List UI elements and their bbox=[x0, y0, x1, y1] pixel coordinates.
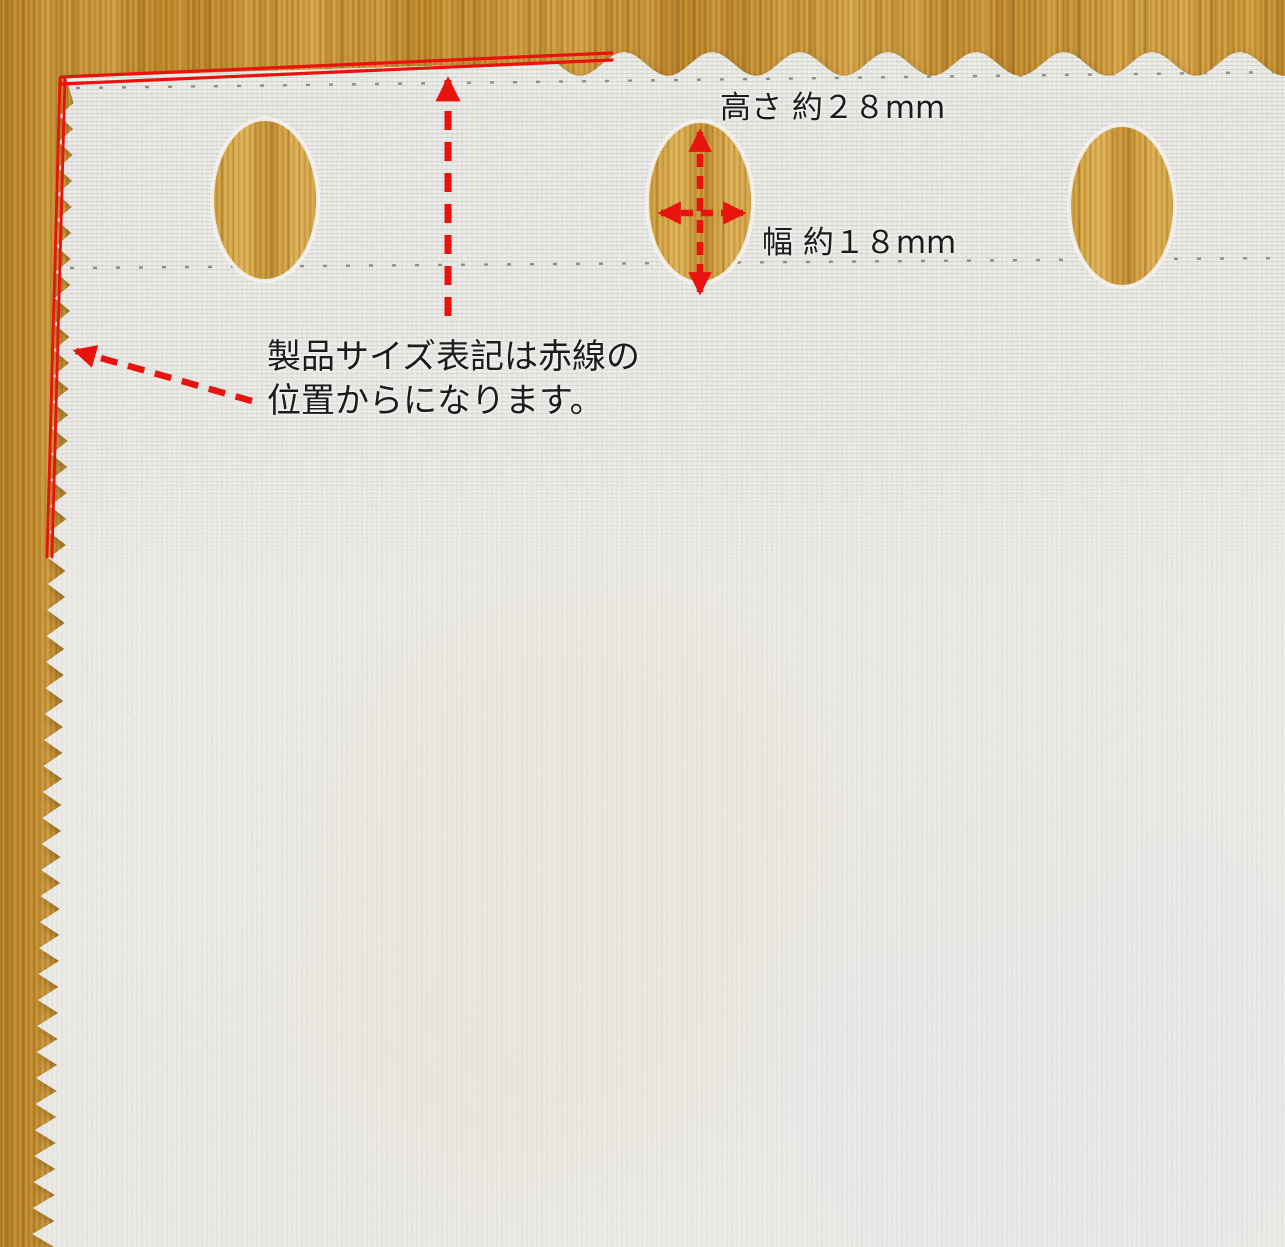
photo-canvas bbox=[0, 0, 1285, 1247]
annotated-product-photo: 高さ 約２８mm 幅 約１８mm 製品サイズ表記は赤線の 位置からになります。 bbox=[0, 0, 1285, 1247]
hole-height-label: 高さ 約２８mm bbox=[720, 82, 945, 127]
size-note-line2: 位置からになります。 bbox=[267, 379, 640, 423]
grommet-hole-3 bbox=[1069, 125, 1175, 287]
size-note-line1: 製品サイズ表記は赤線の bbox=[267, 335, 640, 379]
hole-width-label: 幅 約１８mm bbox=[762, 217, 956, 262]
curtain-fabric bbox=[0, 0, 1285, 1247]
grommet-hole-1 bbox=[212, 119, 318, 281]
size-note: 製品サイズ表記は赤線の 位置からになります。 bbox=[267, 335, 640, 423]
